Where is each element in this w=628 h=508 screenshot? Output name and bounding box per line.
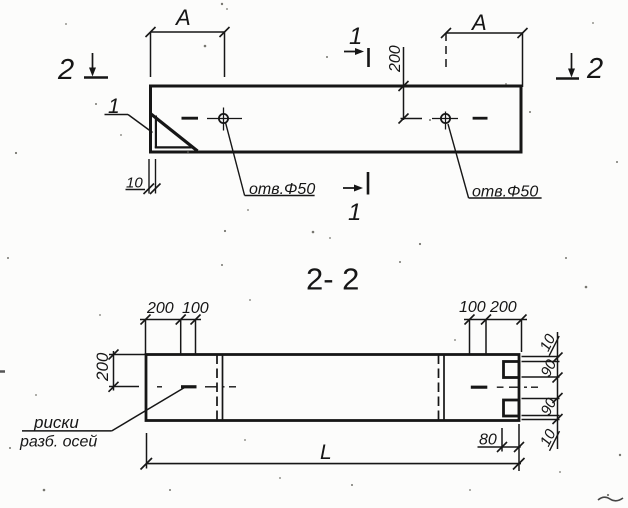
svg-text:1: 1 (348, 199, 361, 226)
svg-text:100: 100 (182, 300, 209, 317)
svg-text:разб. осей: разб. осей (19, 434, 97, 451)
svg-text:100: 100 (459, 299, 486, 316)
svg-text:A: A (470, 10, 487, 35)
svg-text:2- 2: 2- 2 (306, 262, 359, 297)
svg-text:200: 200 (93, 352, 112, 382)
svg-text:200: 200 (387, 45, 404, 73)
svg-text:200: 200 (489, 299, 517, 316)
svg-text:2: 2 (57, 54, 74, 86)
svg-text:80: 80 (479, 432, 497, 449)
svg-text:L: L (320, 441, 332, 464)
svg-text:A: A (174, 5, 191, 30)
svg-text:риски: риски (33, 413, 79, 432)
svg-text:отв.Φ50: отв.Φ50 (249, 181, 315, 198)
svg-text:2: 2 (586, 53, 603, 85)
svg-text:1: 1 (349, 23, 362, 50)
svg-text:отв.Φ50: отв.Φ50 (472, 184, 538, 201)
